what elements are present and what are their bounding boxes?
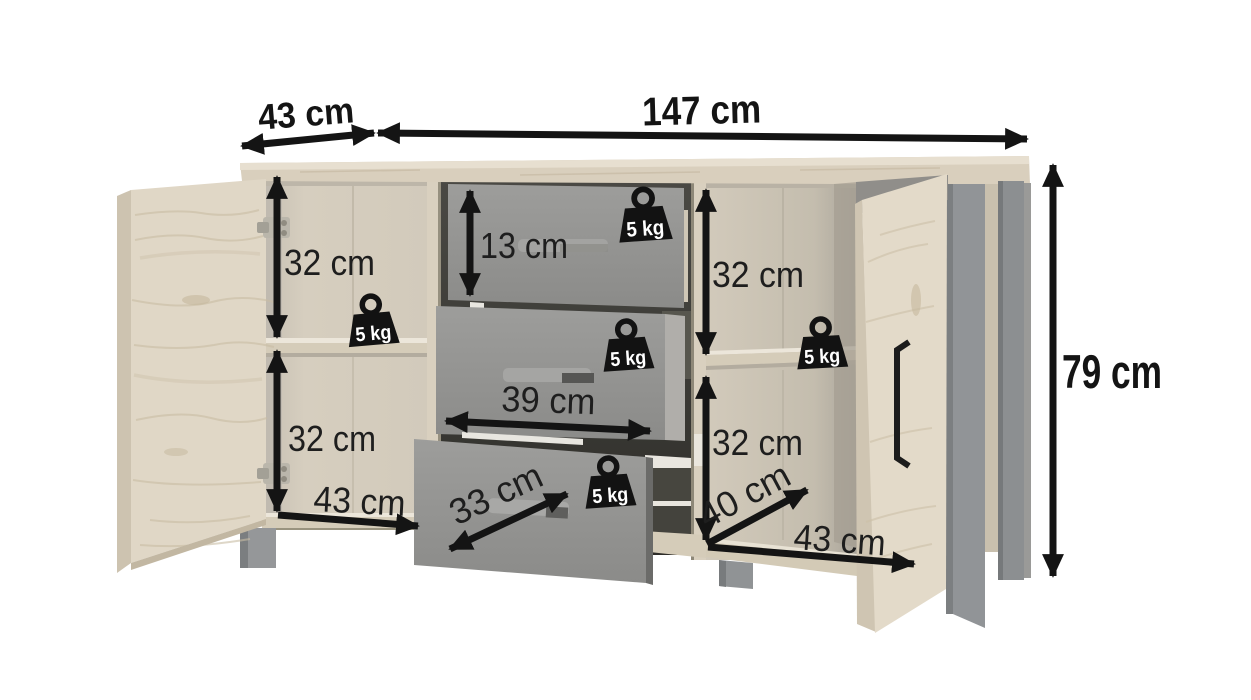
svg-text:13 cm: 13 cm bbox=[480, 225, 568, 266]
svg-text:32 cm: 32 cm bbox=[712, 422, 803, 463]
svg-text:32 cm: 32 cm bbox=[284, 242, 375, 283]
svg-text:79 cm: 79 cm bbox=[1062, 345, 1162, 398]
svg-text:32 cm: 32 cm bbox=[288, 418, 376, 459]
svg-text:43 cm: 43 cm bbox=[257, 89, 356, 137]
svg-text:32 cm: 32 cm bbox=[712, 254, 804, 295]
svg-text:39 cm: 39 cm bbox=[501, 378, 596, 422]
svg-text:147 cm: 147 cm bbox=[642, 87, 762, 134]
svg-text:43 cm: 43 cm bbox=[313, 478, 407, 524]
svg-text:43 cm: 43 cm bbox=[792, 516, 887, 563]
